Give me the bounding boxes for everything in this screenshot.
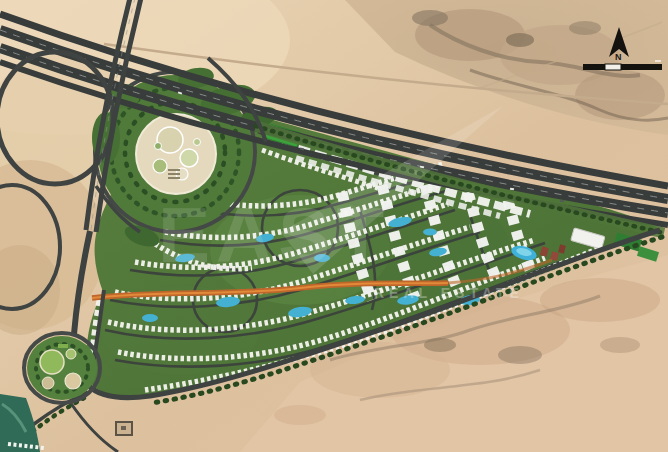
compass-north-label: N bbox=[615, 52, 622, 62]
small-round-park bbox=[24, 333, 100, 403]
watermark-small-text: REAL ESTATE bbox=[374, 285, 524, 301]
master-plan-svg: EAST REAL ESTATE N bbox=[0, 0, 668, 452]
master-plan-image: EAST REAL ESTATE N bbox=[0, 0, 668, 452]
watermark-big-text: EAST bbox=[158, 191, 390, 279]
desert-structure bbox=[116, 422, 132, 435]
